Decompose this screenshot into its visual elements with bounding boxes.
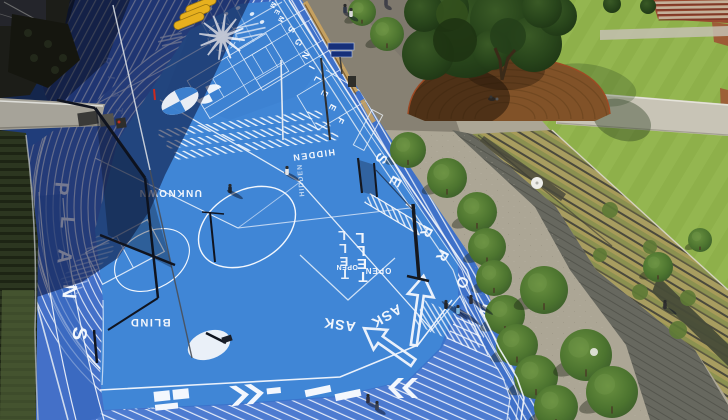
svg-text:L: L — [338, 228, 346, 243]
svg-text:BLIND: BLIND — [129, 316, 170, 328]
svg-text:L: L — [339, 241, 347, 256]
svg-text:T: T — [358, 268, 367, 285]
svg-text:OPEN: OPEN — [365, 266, 392, 275]
svg-text:T: T — [341, 267, 349, 282]
svg-text:E: E — [339, 254, 348, 269]
svg-text:S: S — [67, 326, 90, 341]
